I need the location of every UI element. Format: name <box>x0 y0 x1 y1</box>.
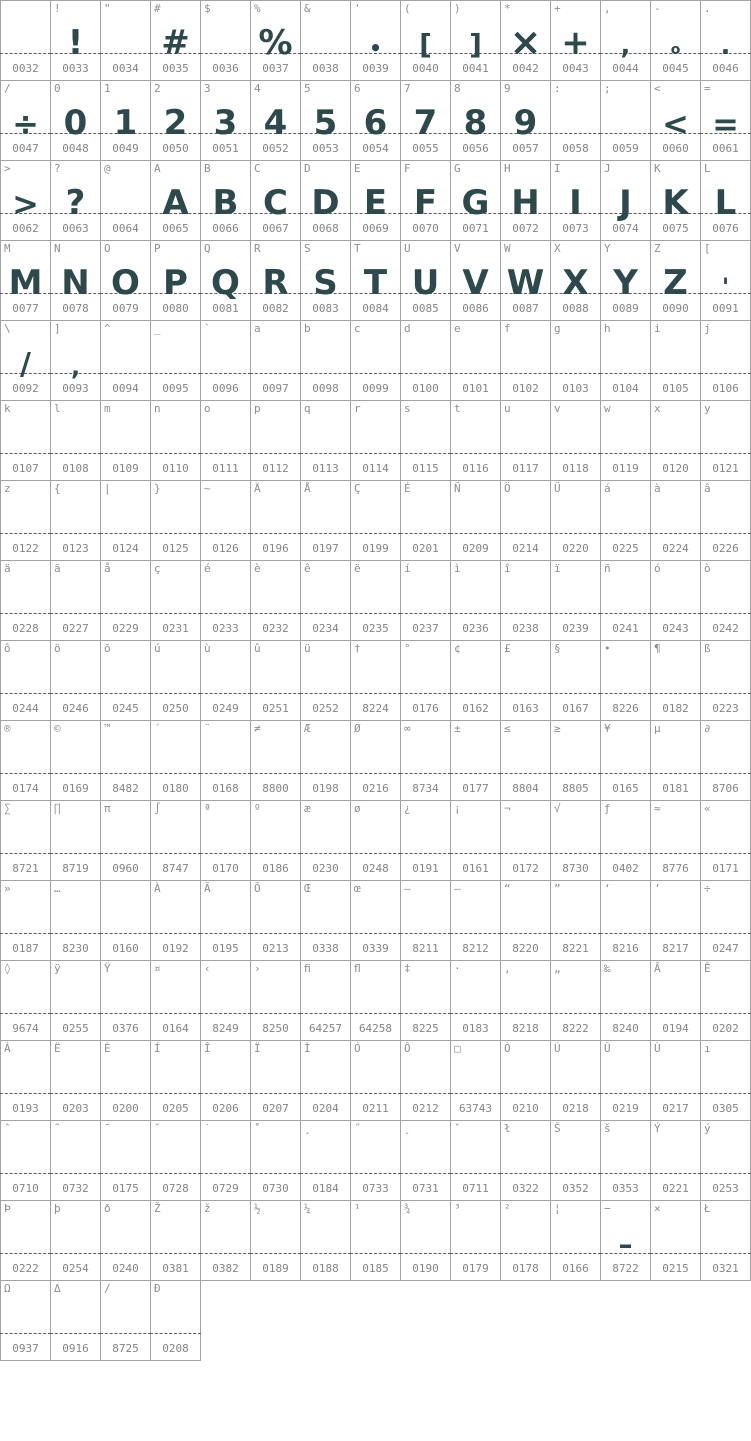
cell-code: 0730 <box>251 1182 300 1195</box>
cell-code: 0321 <box>701 1262 750 1275</box>
cell-code: 0201 <box>401 542 450 555</box>
char-cell-0353: š0353 <box>601 1121 651 1201</box>
cell-code: 8776 <box>651 862 700 875</box>
cell-code: 0114 <box>351 462 400 475</box>
baseline-dashed-line <box>100 1093 151 1094</box>
cell-code: 0126 <box>201 542 250 555</box>
cell-code: 0213 <box>251 942 300 955</box>
cell-glyph-box: > <box>1 161 50 214</box>
char-cell-0230: æ0230 <box>301 801 351 881</box>
cell-label-char: … <box>54 883 61 895</box>
cell-code: 9674 <box>1 1022 50 1035</box>
char-cell-0210: Ò0210 <box>501 1041 551 1121</box>
baseline-dashed-line <box>700 373 751 374</box>
cell-glyph: × <box>510 23 542 61</box>
cell-code: 8240 <box>601 1022 650 1035</box>
cell-label-char: } <box>154 483 161 495</box>
cell-glyph: 9 <box>514 106 538 140</box>
baseline-dashed-line <box>100 1253 151 1254</box>
char-cell-0118: v0118 <box>551 401 601 481</box>
baseline-dashed-line <box>350 1093 401 1094</box>
cell-code: 0100 <box>401 382 450 395</box>
cell-label-char: ù <box>204 643 211 655</box>
baseline-dashed-line <box>450 453 501 454</box>
cell-label-char: ë <box>354 563 361 575</box>
cell-glyph-box: ? <box>51 161 100 214</box>
char-cell-0242: ò0242 <box>701 561 751 641</box>
cell-code: 8747 <box>151 862 200 875</box>
char-cell-0241: ñ0241 <box>601 561 651 641</box>
baseline-dashed-line <box>250 373 301 374</box>
cell-code: 8250 <box>251 1022 300 1035</box>
char-cell-0065: AA0065 <box>151 161 201 241</box>
cell-label-char: & <box>304 3 311 15</box>
char-cell-0036: $0036 <box>201 1 251 81</box>
baseline-dashed-line <box>350 693 401 694</box>
char-cell-0047: /÷0047 <box>1 81 51 161</box>
char-cell-0101: e0101 <box>451 321 501 401</box>
char-cell-8734: ∞8734 <box>401 721 451 801</box>
cell-code: 0200 <box>101 1102 150 1115</box>
baseline-dashed-line <box>200 1013 251 1014</box>
cell-code: 0207 <box>251 1102 300 1115</box>
cell-label-char: ÿ <box>54 963 61 975</box>
cell-code: 8226 <box>601 702 650 715</box>
cell-code: 0180 <box>151 782 200 795</box>
cell-glyph-box: X <box>551 241 600 294</box>
cell-glyph-box: < <box>651 81 700 134</box>
cell-label-char: ü <box>304 643 311 655</box>
cell-code: 8734 <box>401 782 450 795</box>
cell-glyph-box: # <box>151 1 200 54</box>
baseline-dashed-line <box>550 933 601 934</box>
cell-glyph: [ <box>419 31 432 59</box>
char-cell-0916: Δ0916 <box>51 1281 101 1361</box>
cell-label-char: ﬂ <box>354 963 361 975</box>
cell-code: 0088 <box>551 302 600 315</box>
baseline-dashed-line <box>650 1173 701 1174</box>
cell-code: 0222 <box>1 1262 50 1275</box>
cell-glyph-box: G <box>451 161 500 214</box>
cell-label-char: ˚ <box>254 1123 261 1135</box>
char-cell-0039: '•0039 <box>351 1 401 81</box>
char-cell-0053: 550053 <box>301 81 351 161</box>
baseline-dashed-line <box>300 693 351 694</box>
char-cell-8804: ≤8804 <box>501 721 551 801</box>
baseline-dashed-line <box>450 693 501 694</box>
char-cell-0244: ô0244 <box>1 641 51 721</box>
char-cell-0251: û0251 <box>251 641 301 721</box>
baseline-dashed-line <box>500 853 551 854</box>
char-cell-0103: g0103 <box>551 321 601 401</box>
cell-label-char: ø <box>354 803 361 815</box>
cell-label-char: ô <box>4 643 11 655</box>
cell-label-char: p <box>254 403 261 415</box>
cell-glyph-box: ÷ <box>1 81 50 134</box>
cell-code: 0116 <box>451 462 500 475</box>
cell-code: 0058 <box>551 142 600 155</box>
cell-code: 0255 <box>51 1022 100 1035</box>
cell-label-char: ý <box>704 1123 711 1135</box>
baseline-dashed-line <box>50 693 101 694</box>
cell-glyph: F <box>414 186 437 220</box>
cell-code: 0074 <box>601 222 650 235</box>
cell-code: 0174 <box>1 782 50 795</box>
cell-code: 0087 <box>501 302 550 315</box>
baseline-dashed-line <box>200 1173 251 1174</box>
char-cell-0049: 110049 <box>101 81 151 161</box>
baseline-dashed-line <box>0 773 51 774</box>
cell-code: 0124 <box>101 542 150 555</box>
baseline-dashed-line <box>250 533 301 534</box>
char-cell-0731: ˛0731 <box>401 1121 451 1201</box>
char-cell-0168: ¨0168 <box>201 721 251 801</box>
char-cell-0339: œ0339 <box>351 881 401 961</box>
cell-code: 0050 <box>151 142 200 155</box>
cell-glyph-box: [ <box>401 1 450 54</box>
cell-code: 0042 <box>501 62 550 75</box>
cell-label-char: ¬ <box>504 803 511 815</box>
cell-code: 0104 <box>601 382 650 395</box>
char-cell-0192: À0192 <box>151 881 201 961</box>
cell-label-char: d <box>404 323 411 335</box>
cell-glyph: > <box>12 188 39 220</box>
cell-label-char: Í <box>154 1043 161 1055</box>
char-cell-0086: VV0086 <box>451 241 501 321</box>
cell-label-char: ‘ <box>604 883 611 895</box>
cell-code: 0075 <box>651 222 700 235</box>
cell-code: 0339 <box>351 942 400 955</box>
char-cell-8805: ≥8805 <box>551 721 601 801</box>
cell-label-char: " <box>104 3 111 15</box>
cell-glyph: A <box>162 186 188 220</box>
cell-label-char: ƒ <box>604 803 611 815</box>
cell-code: 0032 <box>1 62 50 75</box>
cell-label-char: m <box>104 403 111 415</box>
baseline-dashed-line <box>50 773 101 774</box>
baseline-dashed-line <box>100 933 151 934</box>
cell-code: 63743 <box>451 1102 500 1115</box>
char-cell-0937: Ω0937 <box>1 1281 51 1361</box>
char-cell-0206: Î0206 <box>201 1041 251 1121</box>
cell-label-char: | <box>104 483 111 495</box>
cell-code: 0036 <box>201 62 250 75</box>
cell-code: 0197 <box>301 542 350 555</box>
cell-code: 0095 <box>151 382 200 395</box>
baseline-dashed-line <box>300 773 351 774</box>
char-cell-0190: ¾0190 <box>401 1201 451 1281</box>
char-cell-0119: w0119 <box>601 401 651 481</box>
cell-label-char: « <box>704 803 711 815</box>
cell-label-char: ï <box>554 563 561 575</box>
cell-code: 8804 <box>501 782 550 795</box>
cell-code: 0169 <box>51 782 100 795</box>
cell-glyph: X <box>562 266 588 300</box>
cell-code: 0711 <box>451 1182 500 1195</box>
cell-code: 0352 <box>551 1182 600 1195</box>
char-cell-0050: 220050 <box>151 81 201 161</box>
cell-label-char: é <box>204 563 211 575</box>
char-cell-0033: !!0033 <box>51 1 101 81</box>
char-cell-0196: Ä0196 <box>251 481 301 561</box>
baseline-dashed-line <box>100 773 151 774</box>
char-cell-0732: ˜0732 <box>51 1121 101 1201</box>
baseline-dashed-line <box>0 533 51 534</box>
cell-label-char: Ò <box>504 1043 511 1055</box>
cell-label-char: ł <box>504 1123 511 1135</box>
cell-glyph-box: , <box>601 1 650 54</box>
cell-label-char: ; <box>604 83 611 95</box>
cell-glyph: L <box>715 186 737 220</box>
char-cell-0089: YY0089 <box>601 241 651 321</box>
cell-glyph-box: 6 <box>351 81 400 134</box>
cell-label-char: ‰ <box>604 963 611 975</box>
baseline-dashed-line <box>250 1253 301 1254</box>
char-cell-0203: Ë0203 <box>51 1041 101 1121</box>
char-cell-0106: j0106 <box>701 321 751 401</box>
char-cell-0044: ,,0044 <box>601 1 651 81</box>
character-map-grid: 0032!!0033"0034##0035$0036%%0037&0038'•0… <box>0 0 751 1361</box>
baseline-dashed-line <box>650 613 701 614</box>
char-cell-0085: UU0085 <box>401 241 451 321</box>
cell-code: 0093 <box>51 382 100 395</box>
cell-code: 0233 <box>201 622 250 635</box>
cell-label-char: q <box>304 403 311 415</box>
char-cell-0711: ˇ0711 <box>451 1121 501 1201</box>
cell-label-char: » <box>4 883 11 895</box>
cell-label-char: Þ <box>4 1203 11 1215</box>
cell-glyph: ' <box>722 275 729 299</box>
cell-code: 0097 <box>251 382 300 395</box>
baseline-dashed-line <box>550 613 601 614</box>
char-cell-0187: »0187 <box>1 881 51 961</box>
cell-code: 0080 <box>151 302 200 315</box>
cell-glyph-box: – <box>601 1201 650 1254</box>
cell-label-char: i <box>654 323 661 335</box>
cell-code: 0199 <box>351 542 400 555</box>
baseline-dashed-line <box>100 1333 151 1334</box>
baseline-dashed-line <box>600 613 651 614</box>
char-cell-0067: CC0067 <box>251 161 301 241</box>
char-cell-0066: BB0066 <box>201 161 251 241</box>
char-cell-8776: ≈8776 <box>651 801 701 881</box>
cell-code: 0060 <box>651 142 700 155</box>
char-cell-0034: "0034 <box>101 1 151 81</box>
cell-code: 0037 <box>251 62 300 75</box>
cell-code: 0049 <box>101 142 150 155</box>
cell-label-char: ú <box>154 643 161 655</box>
baseline-dashed-line <box>700 773 751 774</box>
baseline-dashed-line <box>550 1013 601 1014</box>
char-cell-0321: Ł0321 <box>701 1201 751 1281</box>
baseline-dashed-line <box>650 533 701 534</box>
cell-label-char: º <box>254 803 261 815</box>
char-cell-0227: ã0227 <box>51 561 101 641</box>
char-cell-0097: a0097 <box>251 321 301 401</box>
char-cell-64258: ﬂ64258 <box>351 961 401 1041</box>
char-cell-0110: n0110 <box>151 401 201 481</box>
baseline-dashed-line <box>400 533 451 534</box>
cell-code: 0092 <box>1 382 50 395</box>
cell-code: 8805 <box>551 782 600 795</box>
cell-code: 0250 <box>151 702 200 715</box>
cell-code: 0076 <box>701 222 750 235</box>
baseline-dashed-line <box>600 1093 651 1094</box>
baseline-dashed-line <box>450 533 501 534</box>
cell-code: 0238 <box>501 622 550 635</box>
baseline-dashed-line <box>400 773 451 774</box>
char-cell-8220: “8220 <box>501 881 551 961</box>
cell-code: 0089 <box>601 302 650 315</box>
cell-code: 0161 <box>451 862 500 875</box>
char-cell-0104: h0104 <box>601 321 651 401</box>
cell-label-char: × <box>654 1203 661 1215</box>
char-cell-8706: ∂8706 <box>701 721 751 801</box>
cell-code: 8212 <box>451 942 500 955</box>
cell-code: 0048 <box>51 142 100 155</box>
cell-label-char: ¯ <box>104 1123 111 1135</box>
char-cell-0177: ±0177 <box>451 721 501 801</box>
cell-label-char: õ <box>104 643 111 655</box>
char-cell-8221: ”8221 <box>551 881 601 961</box>
baseline-dashed-line <box>600 533 651 534</box>
cell-label-char: ç <box>154 563 161 575</box>
cell-code: 8217 <box>651 942 700 955</box>
char-cell-0037: %%0037 <box>251 1 301 81</box>
cell-glyph-box: K <box>651 161 700 214</box>
cell-label-char: Û <box>604 1043 611 1055</box>
cell-code: 0073 <box>551 222 600 235</box>
char-cell-8240: ‰8240 <box>601 961 651 1041</box>
cell-glyph-box: E <box>351 161 400 214</box>
char-cell-0171: «0171 <box>701 801 751 881</box>
char-cell-0081: QQ0081 <box>201 241 251 321</box>
cell-label-char: Ł <box>704 1203 711 1215</box>
char-cell-0322: ł0322 <box>501 1121 551 1201</box>
cell-label-char: ™ <box>104 723 111 735</box>
cell-label-char: ¡ <box>454 803 461 815</box>
cell-code: 0353 <box>601 1182 650 1195</box>
cell-glyph-box: D <box>301 161 350 214</box>
cell-glyph-box: , <box>51 321 100 374</box>
cell-code: 0107 <box>1 462 50 475</box>
baseline-dashed-line <box>150 373 201 374</box>
cell-label-char: ´ <box>154 723 161 735</box>
char-cell-8224: †8224 <box>351 641 401 721</box>
char-cell-0062: >>0062 <box>1 161 51 241</box>
char-cell-0057: 990057 <box>501 81 551 161</box>
char-cell-0247: ÷0247 <box>701 881 751 961</box>
char-cell-0117: u0117 <box>501 401 551 481</box>
cell-label-char: ˛ <box>404 1123 411 1135</box>
baseline-dashed-line <box>300 1173 351 1174</box>
cell-code: 64258 <box>351 1022 400 1035</box>
char-cell-0051: 330051 <box>201 81 251 161</box>
baseline-dashed-line <box>150 1253 201 1254</box>
cell-glyph-box: ! <box>51 1 100 54</box>
char-cell-8719: ∏8719 <box>51 801 101 881</box>
cell-code: 0115 <box>401 462 450 475</box>
cell-code: 0243 <box>651 622 700 635</box>
cell-glyph: + <box>561 26 590 60</box>
cell-code: 0186 <box>251 862 300 875</box>
baseline-dashed-line <box>300 853 351 854</box>
cell-label-char: ® <box>4 723 11 735</box>
cell-label-char: Ù <box>654 1043 661 1055</box>
baseline-dashed-line <box>650 693 701 694</box>
baseline-dashed-line <box>0 53 51 54</box>
char-cell-0160: 0160 <box>101 881 151 961</box>
char-cell-0202: Ê0202 <box>701 961 751 1041</box>
char-cell-0236: ì0236 <box>451 561 501 641</box>
cell-glyph-box: H <box>501 161 550 214</box>
cell-glyph-box: I <box>551 161 600 214</box>
baseline-dashed-line <box>600 373 651 374</box>
cell-code: 0176 <box>401 702 450 715</box>
cell-code: 0120 <box>651 462 700 475</box>
cell-glyph: B <box>213 186 239 220</box>
cell-code: 0109 <box>101 462 150 475</box>
char-cell-0032: 0032 <box>1 1 51 81</box>
char-cell-0214: Ö0214 <box>501 481 551 561</box>
cell-code: 8719 <box>51 862 100 875</box>
char-cell-0248: ø0248 <box>351 801 401 881</box>
cell-label-char: ß <box>704 643 711 655</box>
cell-code: 0244 <box>1 702 50 715</box>
cell-label-char: ó <box>654 563 661 575</box>
cell-code: 0078 <box>51 302 100 315</box>
baseline-dashed-line <box>100 1013 151 1014</box>
cell-label-char: $ <box>204 3 211 15</box>
cell-label-char: › <box>254 963 261 975</box>
cell-code: 0171 <box>701 862 750 875</box>
cell-code: 0103 <box>551 382 600 395</box>
cell-glyph: E <box>364 186 387 220</box>
cell-code: 0183 <box>451 1022 500 1035</box>
cell-code: 0041 <box>451 62 500 75</box>
cell-label-char: š <box>604 1123 611 1135</box>
char-cell-0217: Ù0217 <box>651 1041 701 1121</box>
cell-code: 0217 <box>651 1102 700 1115</box>
baseline-dashed-line <box>200 453 251 454</box>
baseline-dashed-line <box>400 453 451 454</box>
baseline-dashed-line <box>600 133 651 134</box>
char-cell-0069: EE0069 <box>351 161 401 241</box>
char-cell-0165: ¥0165 <box>601 721 651 801</box>
cell-code: 0064 <box>101 222 150 235</box>
char-cell-0183: ·0183 <box>451 961 501 1041</box>
cell-label-char: í <box>404 563 411 575</box>
cell-glyph-box: + <box>551 1 600 54</box>
baseline-dashed-line <box>50 533 101 534</box>
cell-code: 0211 <box>351 1102 400 1115</box>
cell-code: 0248 <box>351 862 400 875</box>
cell-label-char: ê <box>304 563 311 575</box>
cell-code: 0043 <box>551 62 600 75</box>
baseline-dashed-line <box>700 1013 751 1014</box>
cell-glyph: o <box>671 43 681 57</box>
baseline-dashed-line <box>700 933 751 934</box>
cell-code: 0177 <box>451 782 500 795</box>
cell-label-char: a <box>254 323 261 335</box>
cell-code: 0112 <box>251 462 300 475</box>
baseline-dashed-line <box>0 1013 51 1014</box>
cell-label-char: ∞ <box>404 723 411 735</box>
baseline-dashed-line <box>300 613 351 614</box>
char-cell-0223: ß0223 <box>701 641 751 721</box>
baseline-dashed-line <box>150 693 201 694</box>
cell-code: 0111 <box>201 462 250 475</box>
